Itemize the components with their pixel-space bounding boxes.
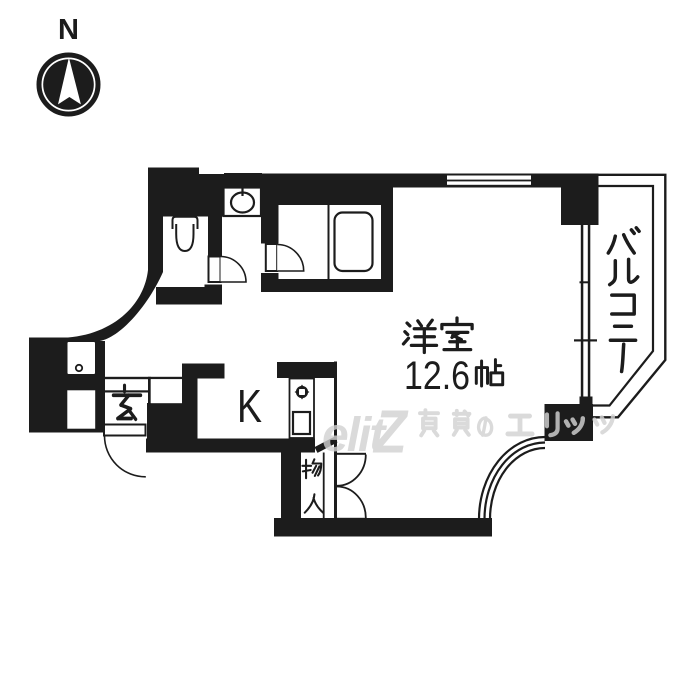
svg-text:K: K bbox=[237, 380, 262, 432]
svg-text:12.6: 12.6 bbox=[404, 354, 470, 398]
svg-text:Z: Z bbox=[372, 398, 408, 466]
svg-text:N: N bbox=[58, 14, 79, 46]
